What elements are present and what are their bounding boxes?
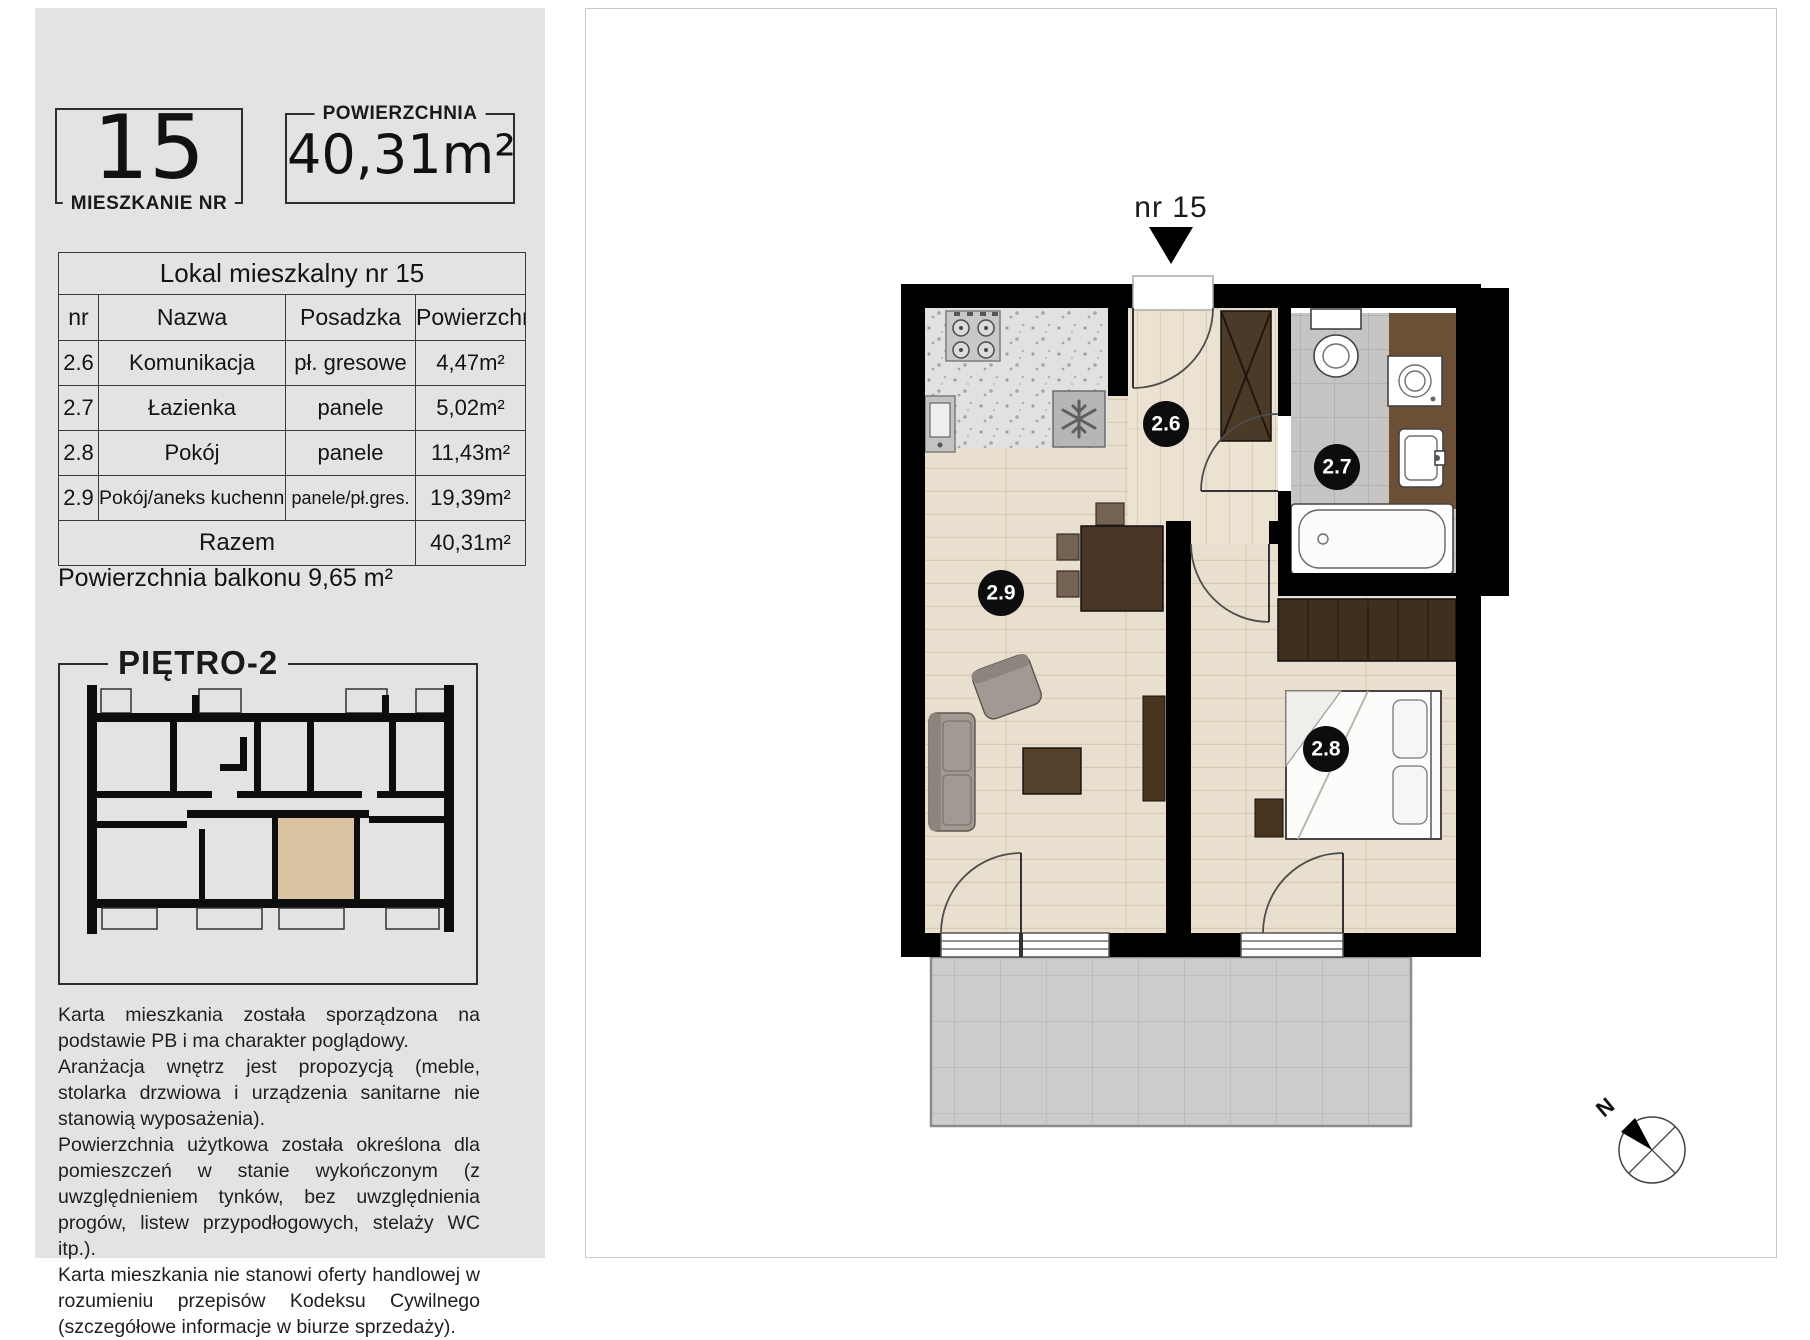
coffee-table	[1023, 748, 1081, 794]
disclaimer-paragraph: Karta mieszkania nie stanowi oferty hand…	[58, 1262, 480, 1340]
col-header-nazwa: Nazwa	[99, 295, 286, 341]
unit-pointer: nr 15	[1134, 191, 1207, 264]
fridge-icon	[1053, 391, 1105, 447]
toilet-icon	[1311, 309, 1361, 377]
cell-posadzka: panele	[286, 386, 416, 431]
cell-nazwa: Pokój	[99, 431, 286, 476]
table-row: 2.6 Komunikacja pł. gresowe 4,47m²	[59, 341, 526, 386]
room-label-living: 2.9	[978, 570, 1024, 616]
room-label-bedroom: 2.8	[1303, 726, 1349, 772]
unit-pointer-arrow-icon	[1149, 227, 1193, 264]
kitchen-sink-icon	[925, 396, 955, 452]
area-value: 40,31m²	[287, 123, 513, 186]
sofa	[929, 713, 975, 831]
cell-powierzchnia: 5,02m²	[416, 386, 526, 431]
balcony-door-window	[941, 933, 1109, 957]
compass-north-label: N	[1591, 1093, 1619, 1122]
rooms-table: Lokal mieszkalny nr 15 nr Nazwa Posadzka…	[58, 252, 526, 566]
tv-cabinet	[1143, 696, 1165, 801]
floor-overview-title: PIĘTRO-2	[108, 644, 288, 682]
disclaimer-paragraph: Powierzchnia użytkowa została określona …	[58, 1132, 480, 1262]
floor-overview-plan	[72, 679, 464, 973]
apartment-number: 15	[57, 96, 241, 199]
col-header-posadzka: Posadzka	[286, 295, 416, 341]
unit-pointer-label: nr 15	[1134, 191, 1207, 224]
mini-top-balconies	[87, 685, 454, 713]
cell-powierzchnia: 4,47m²	[416, 341, 526, 386]
table-row: 2.7 Łazienka panele 5,02m²	[59, 386, 526, 431]
cell-posadzka: panele/pł.gres.	[286, 476, 416, 521]
cell-nazwa: Łazienka	[99, 386, 286, 431]
rooms-table-title: Lokal mieszkalny nr 15	[59, 253, 526, 295]
nightstand	[1255, 799, 1283, 837]
mini-bottom-balconies	[87, 908, 454, 934]
svg-text:2.6: 2.6	[1151, 413, 1180, 436]
balcony-area-note: Powierzchnia balkonu 9,65 m²	[58, 564, 393, 593]
floor-plan-sheet: nr 15	[585, 8, 1777, 1258]
table-row: 2.9 Pokój/aneks kuchenny panele/pł.gres.…	[59, 476, 526, 521]
apartment-number-box: 15 MIESZKANIE NR	[55, 108, 243, 204]
total-label: Razem	[59, 521, 416, 566]
legal-disclaimer: Karta mieszkania została sporządzona na …	[58, 1002, 480, 1340]
cell-posadzka: pł. gresowe	[286, 341, 416, 386]
mini-interior-walls	[91, 722, 444, 899]
highlighted-unit	[278, 818, 354, 899]
cell-nr: 2.9	[59, 476, 99, 521]
cell-nr: 2.8	[59, 431, 99, 476]
info-sidebar: 15 MIESZKANIE NR POWIERZCHNIA 40,31m² Lo…	[35, 8, 545, 1258]
bedroom-wardrobe	[1278, 599, 1456, 661]
cell-powierzchnia: 19,39m²	[416, 476, 526, 521]
svg-text:2.8: 2.8	[1311, 738, 1341, 761]
cell-nazwa: Komunikacja	[99, 341, 286, 386]
compass-icon: N	[1591, 1093, 1685, 1183]
bathroom-sink-icon	[1399, 429, 1445, 487]
area-label: POWIERZCHNIA	[315, 103, 486, 125]
room-label-hall: 2.6	[1143, 401, 1189, 447]
bathtub-icon	[1291, 504, 1453, 574]
rooms-table-header: nr Nazwa Posadzka Powierzchnia	[59, 295, 526, 341]
stove-icon	[946, 311, 1000, 361]
apartment-number-label: MIESZKANIE NR	[63, 193, 235, 215]
col-header-powierzchnia: Powierzchnia	[416, 295, 526, 341]
area-box: POWIERZCHNIA 40,31m²	[285, 113, 515, 204]
balcony	[931, 957, 1411, 1126]
disclaimer-paragraph: Aranżacja wnętrz jest propozycją (meble,…	[58, 1054, 480, 1132]
cell-powierzchnia: 11,43m²	[416, 431, 526, 476]
room-label-bathroom: 2.7	[1314, 444, 1360, 490]
table-total-row: Razem 40,31m²	[59, 521, 526, 566]
svg-text:2.9: 2.9	[986, 582, 1015, 605]
cell-nazwa: Pokój/aneks kuchenny	[99, 476, 286, 521]
washing-machine-icon	[1388, 356, 1442, 406]
table-row: 2.8 Pokój panele 11,43m²	[59, 431, 526, 476]
bedroom-window	[1241, 933, 1343, 957]
cell-nr: 2.6	[59, 341, 99, 386]
disclaimer-paragraph: Karta mieszkania została sporządzona na …	[58, 1002, 480, 1054]
floor-plan-drawing: nr 15	[586, 9, 1776, 1257]
floor-overview-box: PIĘTRO-2	[58, 663, 478, 985]
cell-nr: 2.7	[59, 386, 99, 431]
bed	[1286, 691, 1441, 839]
total-value: 40,31m²	[416, 521, 526, 566]
cell-posadzka: panele	[286, 431, 416, 476]
svg-text:2.7: 2.7	[1322, 456, 1351, 479]
col-header-nr: nr	[59, 295, 99, 341]
